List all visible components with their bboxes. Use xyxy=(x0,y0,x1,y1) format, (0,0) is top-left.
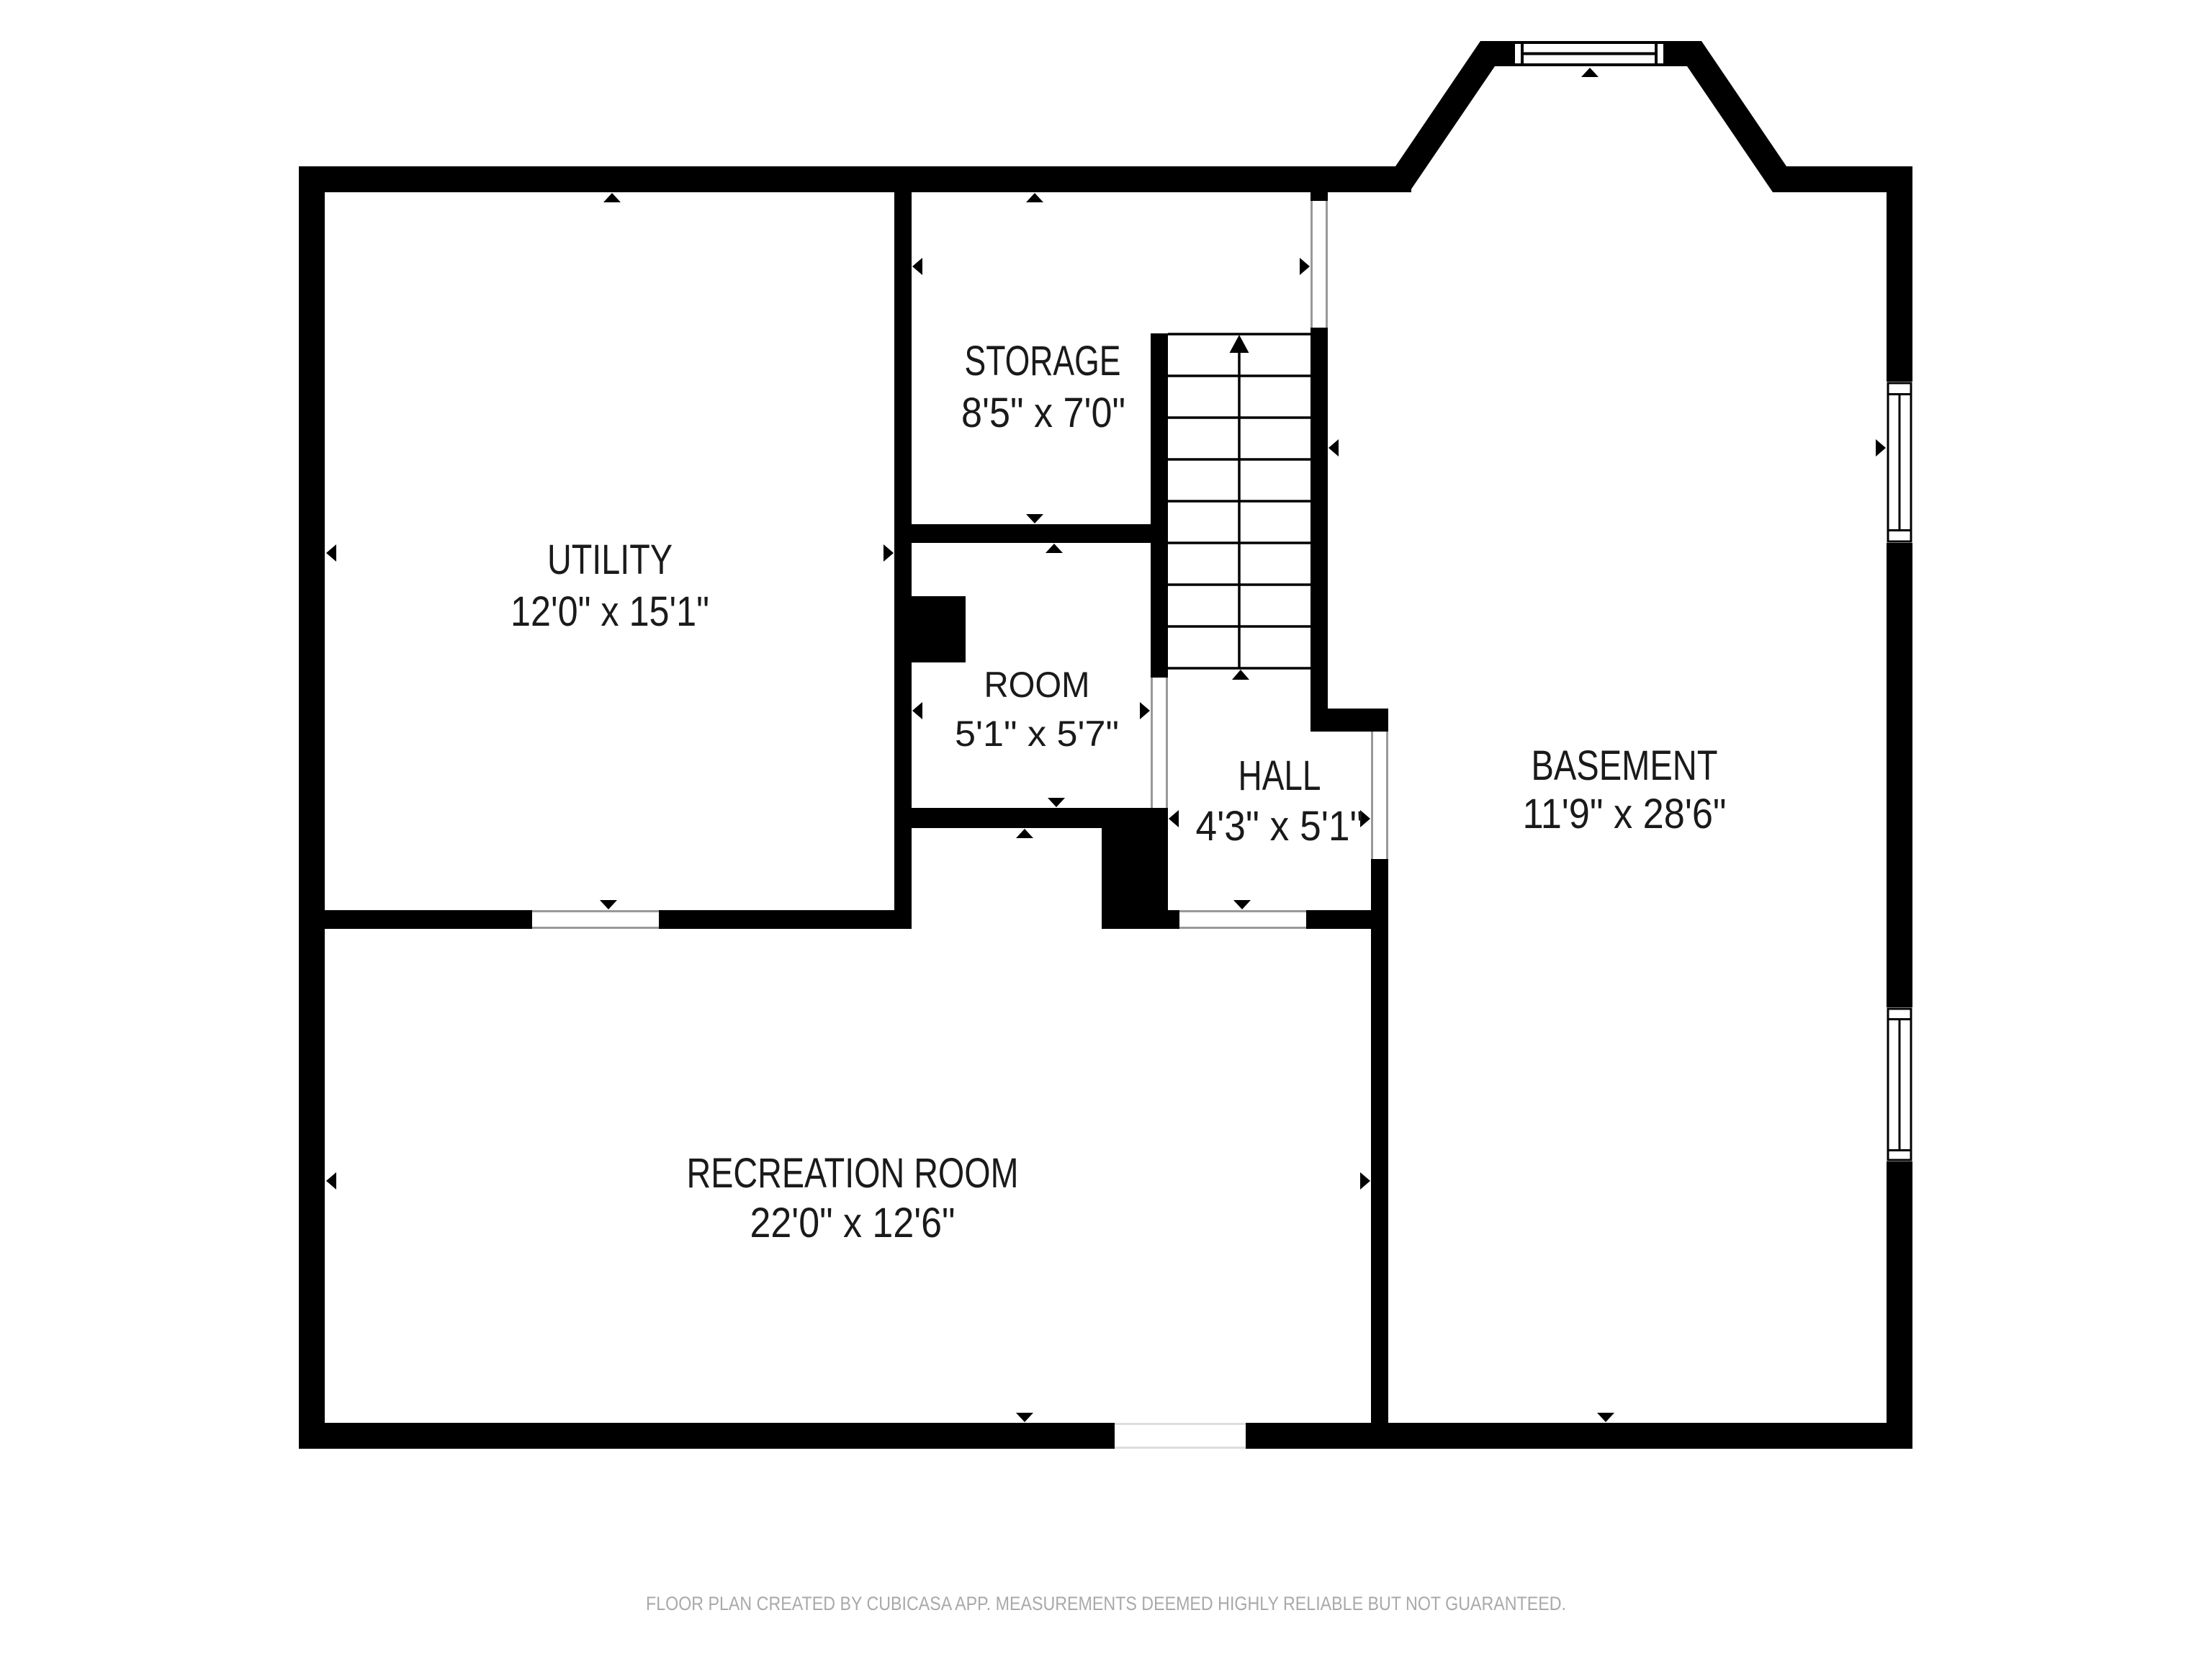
svg-text:5'1" x 5'7": 5'1" x 5'7" xyxy=(955,714,1119,754)
svg-text:BASEMENT: BASEMENT xyxy=(1532,742,1718,789)
svg-text:12'0" x 15'1": 12'0" x 15'1" xyxy=(511,588,709,635)
svg-text:RECREATION ROOM: RECREATION ROOM xyxy=(687,1150,1019,1197)
svg-text:HALL: HALL xyxy=(1238,752,1321,799)
svg-text:ROOM: ROOM xyxy=(984,665,1090,705)
svg-text:8'5" x 7'0": 8'5" x 7'0" xyxy=(961,390,1125,436)
svg-text:FLOOR PLAN CREATED BY CUBICASA: FLOOR PLAN CREATED BY CUBICASA APP. MEAS… xyxy=(646,1593,1566,1614)
svg-text:11'9" x 28'6": 11'9" x 28'6" xyxy=(1523,791,1727,837)
svg-text:22'0" x 12'6": 22'0" x 12'6" xyxy=(750,1200,956,1246)
svg-text:STORAGE: STORAGE xyxy=(965,338,1121,385)
svg-text:UTILITY: UTILITY xyxy=(547,536,673,583)
svg-text:4'3" x 5'1": 4'3" x 5'1" xyxy=(1196,803,1364,850)
